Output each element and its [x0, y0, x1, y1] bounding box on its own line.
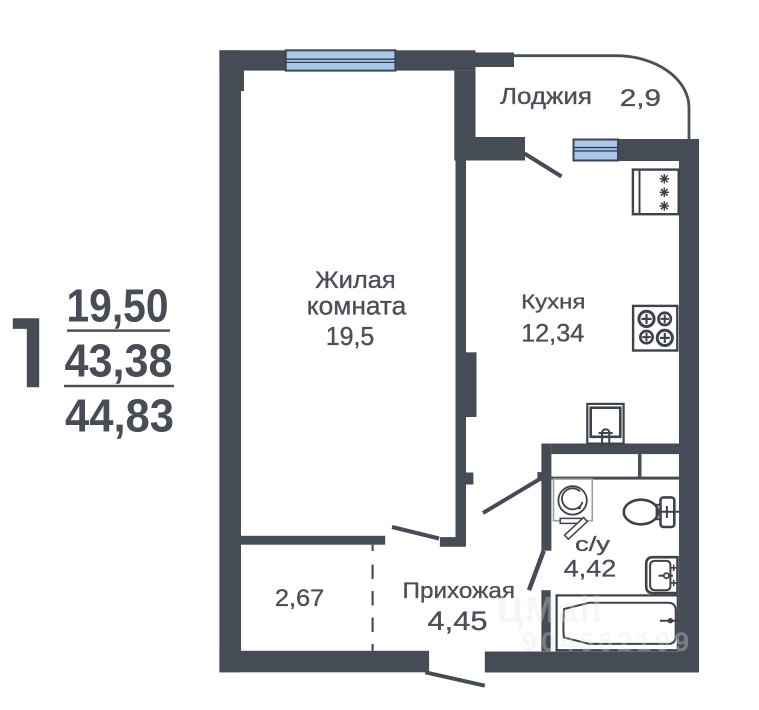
svg-text:2,67: 2,67	[275, 585, 324, 612]
svg-text:2,9: 2,9	[620, 85, 661, 112]
svg-text:4,45: 4,45	[428, 606, 488, 636]
svg-text:4,42: 4,42	[564, 556, 617, 583]
svg-text:комната: комната	[307, 290, 407, 320]
svg-text:904662199: 904662199	[522, 627, 693, 657]
svg-text:Кухня: Кухня	[521, 291, 585, 313]
svg-text:19,50: 19,50	[67, 280, 169, 332]
svg-text:с/у: с/у	[575, 534, 610, 556]
svg-text:44,83: 44,83	[65, 390, 174, 442]
svg-text:Лоджия: Лоджия	[500, 83, 592, 109]
svg-text:ЦМаll: ЦМаll	[497, 589, 604, 630]
svg-text:12,34: 12,34	[521, 319, 584, 347]
svg-text:19,5: 19,5	[326, 323, 375, 351]
svg-text:43,38: 43,38	[65, 335, 173, 387]
